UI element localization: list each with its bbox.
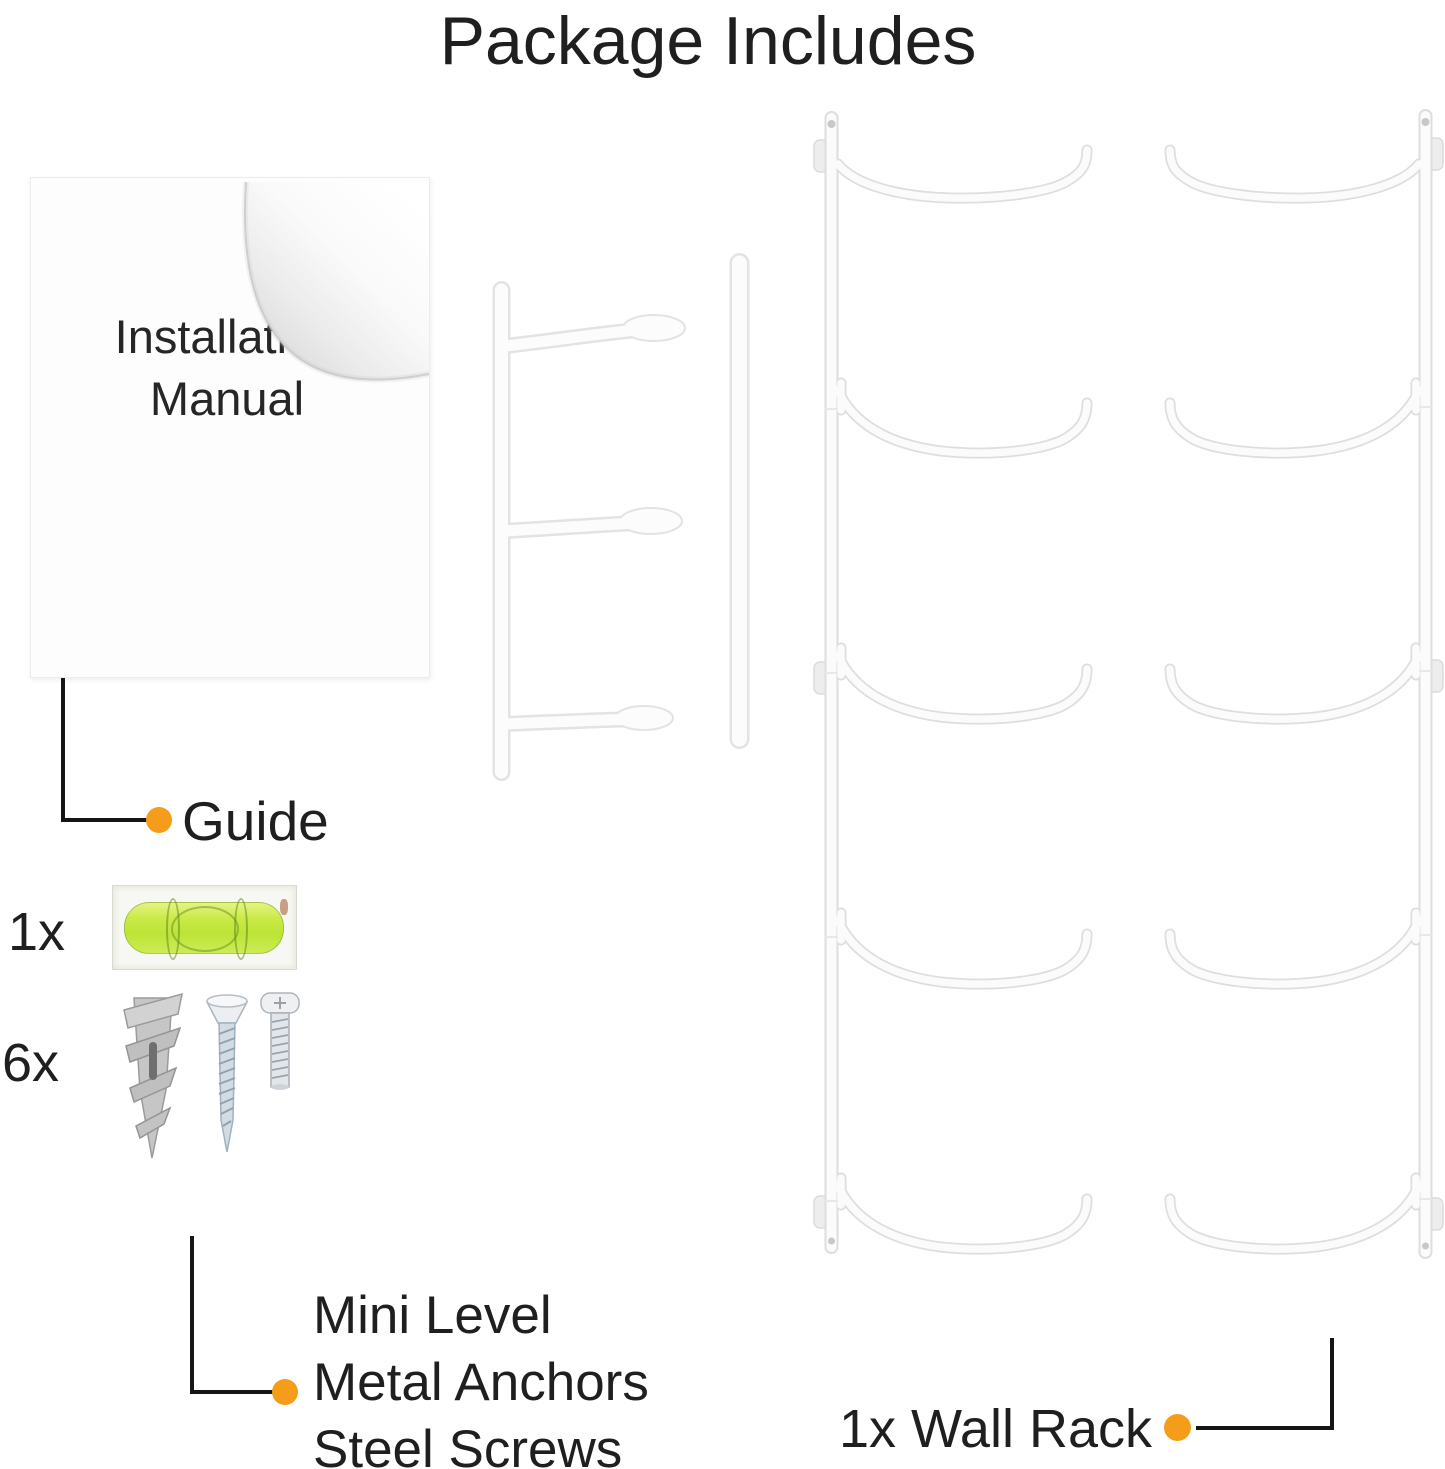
rack-wire-frame	[832, 116, 1426, 1252]
package-includes-infographic: Package Includes Installation Manual Gui…	[0, 0, 1445, 1469]
level-bubble	[171, 906, 239, 952]
installation-manual-paper: Installation Manual	[30, 177, 430, 678]
manual-title-line2: Manual	[31, 368, 423, 430]
rack-details	[826, 118, 1431, 1250]
hardware-callout-dot	[272, 1379, 298, 1405]
rack-hooks-left	[838, 150, 1087, 1249]
manual-title: Installation Manual	[31, 306, 423, 430]
wall-rack	[790, 100, 1445, 1335]
guide-label: Guide	[182, 789, 329, 853]
rack-wire-frame	[832, 116, 1426, 1252]
hardware-label-metal-anchors: Metal Anchors	[313, 1352, 649, 1413]
guide-bracket-and-rod	[455, 235, 785, 795]
rack-callout-line-vertical	[1330, 1338, 1334, 1430]
level-glint	[280, 899, 288, 915]
guide-callout-line-horizontal	[61, 818, 151, 822]
hardware-label-mini-level: Mini Level	[313, 1285, 552, 1346]
hardware-callout-line-horizontal	[190, 1390, 274, 1394]
steel-screw-icon	[207, 995, 247, 1152]
guide-bracket	[502, 290, 686, 772]
hardware-label-steel-screws: Steel Screws	[313, 1419, 622, 1469]
manual-title-line1: Installation	[31, 306, 423, 368]
hardware-callout-line-vertical	[190, 1236, 194, 1394]
drywall-anchor-icon	[124, 994, 182, 1158]
rack-callout-line-horizontal	[1196, 1426, 1334, 1430]
machine-screw-icon	[261, 993, 299, 1090]
level-quantity-label: 1x	[8, 901, 65, 963]
rack-callout-dot	[1164, 1414, 1191, 1441]
guide-callout-line-vertical	[61, 678, 65, 822]
rack-mount-tabs	[814, 138, 1443, 1230]
rack-hooks-right	[1170, 150, 1419, 1249]
hardware-set	[105, 985, 315, 1170]
rack-label: 1x Wall Rack	[839, 1398, 1152, 1460]
guide-callout-dot	[146, 807, 172, 833]
page-title: Package Includes	[0, 2, 1416, 80]
hardware-quantity-label: 6x	[2, 1032, 59, 1094]
mini-level	[112, 885, 297, 970]
